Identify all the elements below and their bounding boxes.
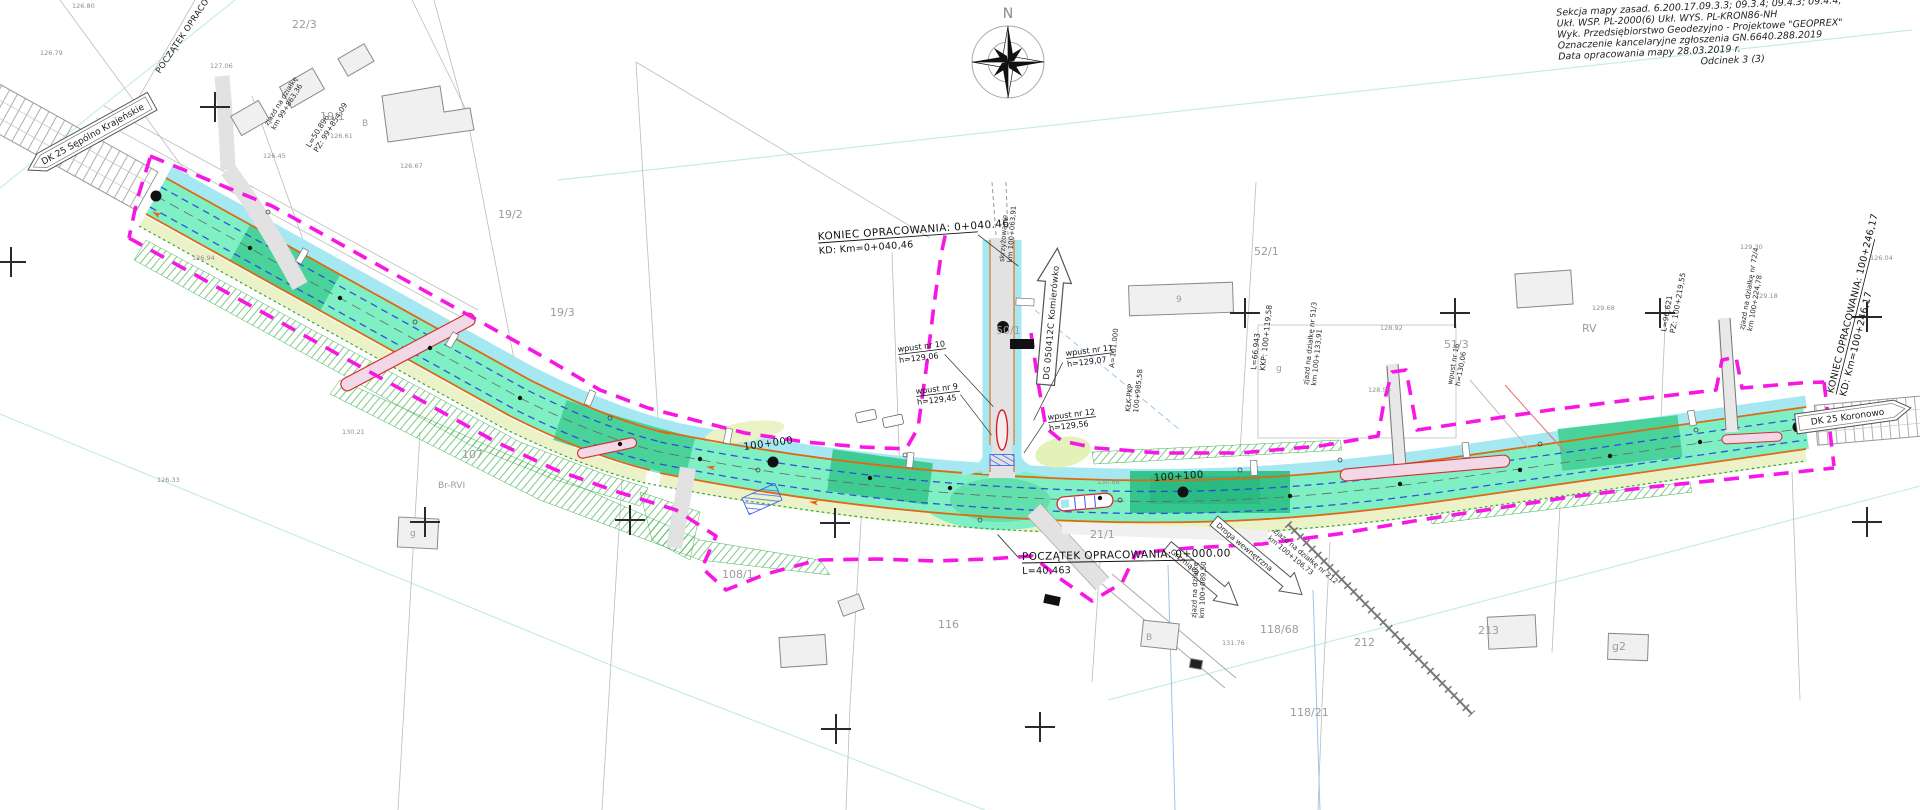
note-a101-l1: A=101.000 (1108, 328, 1120, 368)
parcel-19-3: 19/3 (550, 306, 575, 319)
elev-14: 129.68 (1592, 304, 1615, 312)
grid-crosses (0, 92, 1882, 744)
poczatek-line2: L=40,463 (1022, 565, 1071, 577)
elev-12: 129.30 (1740, 243, 1763, 251)
elev-0: 126.80 (72, 2, 95, 10)
elev-5: 126.45 (263, 152, 286, 160)
parcel-21-1: 21/1 (1090, 528, 1115, 541)
parcel-116: 116 (938, 618, 959, 631)
elev-10: 128.92 (1380, 324, 1403, 332)
soil-br-rvi: Br-RVI (438, 481, 465, 491)
elev-8: 130.21 (342, 428, 365, 436)
parcel-50-1: 50/1 (996, 324, 1021, 337)
koniec-side-line1: KONIEC OPRACOWANIA: 0+040.46 (817, 218, 1009, 243)
parcel-118-21: 118/21 (1290, 706, 1329, 719)
note-zjazd-100089-l2: km 100+089,50 (1198, 561, 1208, 618)
parcel-108-1: 108/1 (722, 568, 754, 581)
note-klk-pkp-l2: 100+985,58 (1132, 369, 1145, 413)
parcel-B-1: B (362, 119, 368, 129)
elev-6: 126.94 (192, 254, 215, 262)
elev-15: 126.04 (1870, 254, 1893, 262)
parcel-22-3: 22/3 (292, 18, 317, 31)
bldg-9: 9 (1176, 295, 1182, 305)
poczatek-line1: POCZĄTEK OPRACOWANIA: 0+000.00 (1022, 547, 1231, 563)
parcel-212: 212 (1354, 636, 1375, 649)
parcel-107: 107 (462, 448, 483, 461)
site-plan-sheet: DG 050412C Komierówko Grzmiąca Droga wew… (0, 0, 1920, 810)
bldg-g-1: g (410, 529, 416, 539)
map-info-block: Sekcja mapy zasad. 6.200.17.09.3.3; 09.3… (1556, 0, 1844, 74)
parcel-19-1: 19/1 (320, 110, 345, 123)
elev-13: 129.18 (1755, 292, 1778, 300)
soil-rv: RV (1582, 322, 1597, 335)
info-line-6: Odcinek 3 (3) (1700, 54, 1765, 68)
elev-3: 126.61 (330, 132, 353, 140)
parcel-19-2: 19/2 (498, 208, 523, 221)
elev-9: 130.68 (1097, 478, 1120, 486)
compass-rose: N (972, 6, 1044, 98)
elev-4: 126.67 (400, 162, 423, 170)
parcel-52-1: 52/1 (1254, 245, 1279, 258)
parcel-g2: g2 (1612, 640, 1626, 653)
bldg-g-2: g (1276, 364, 1282, 374)
bldg-B-2: B (1146, 633, 1152, 643)
elev-11: 128.50 (1368, 386, 1391, 394)
compass-north-label: N (1003, 6, 1013, 22)
elev-2: 127.06 (210, 62, 233, 70)
parcel-118-68: 118/68 (1260, 623, 1299, 636)
parcel-213: 213 (1478, 624, 1499, 637)
parcel-51-3: 51/3 (1444, 338, 1469, 351)
elev-16: 131.76 (1222, 639, 1245, 647)
junction-sign-box (1010, 339, 1034, 349)
sheet-frame-lines (0, 0, 1920, 810)
site-plan-canvas: DG 050412C Komierówko Grzmiąca Droga wew… (0, 0, 1920, 810)
elev-7: 126.33 (157, 476, 180, 484)
elev-1: 126.79 (40, 49, 63, 57)
